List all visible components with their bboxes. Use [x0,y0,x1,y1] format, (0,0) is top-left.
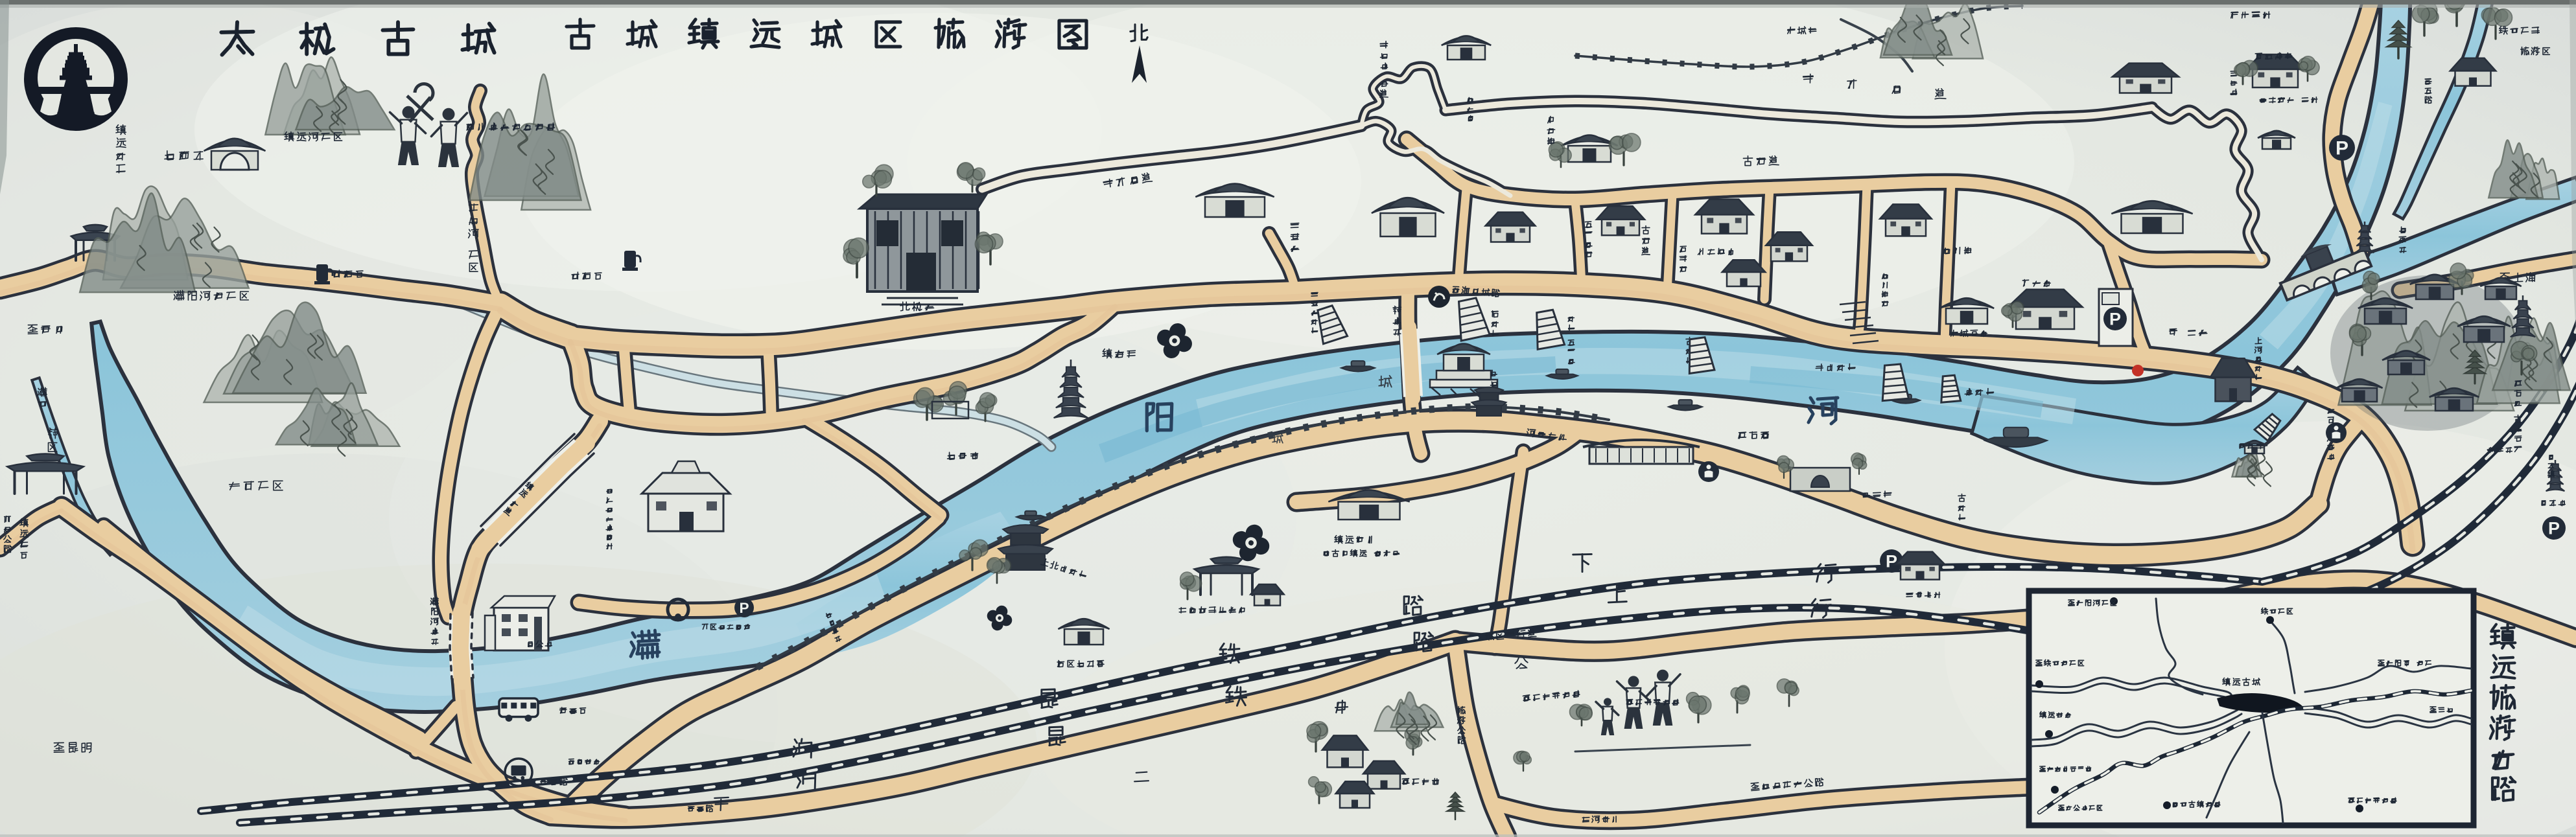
svg-text:P: P [739,600,749,616]
svg-text:P: P [2548,518,2560,538]
svg-text:P: P [2336,137,2348,159]
svg-text:P: P [2109,309,2121,328]
svg-text:P: P [1886,551,1897,571]
